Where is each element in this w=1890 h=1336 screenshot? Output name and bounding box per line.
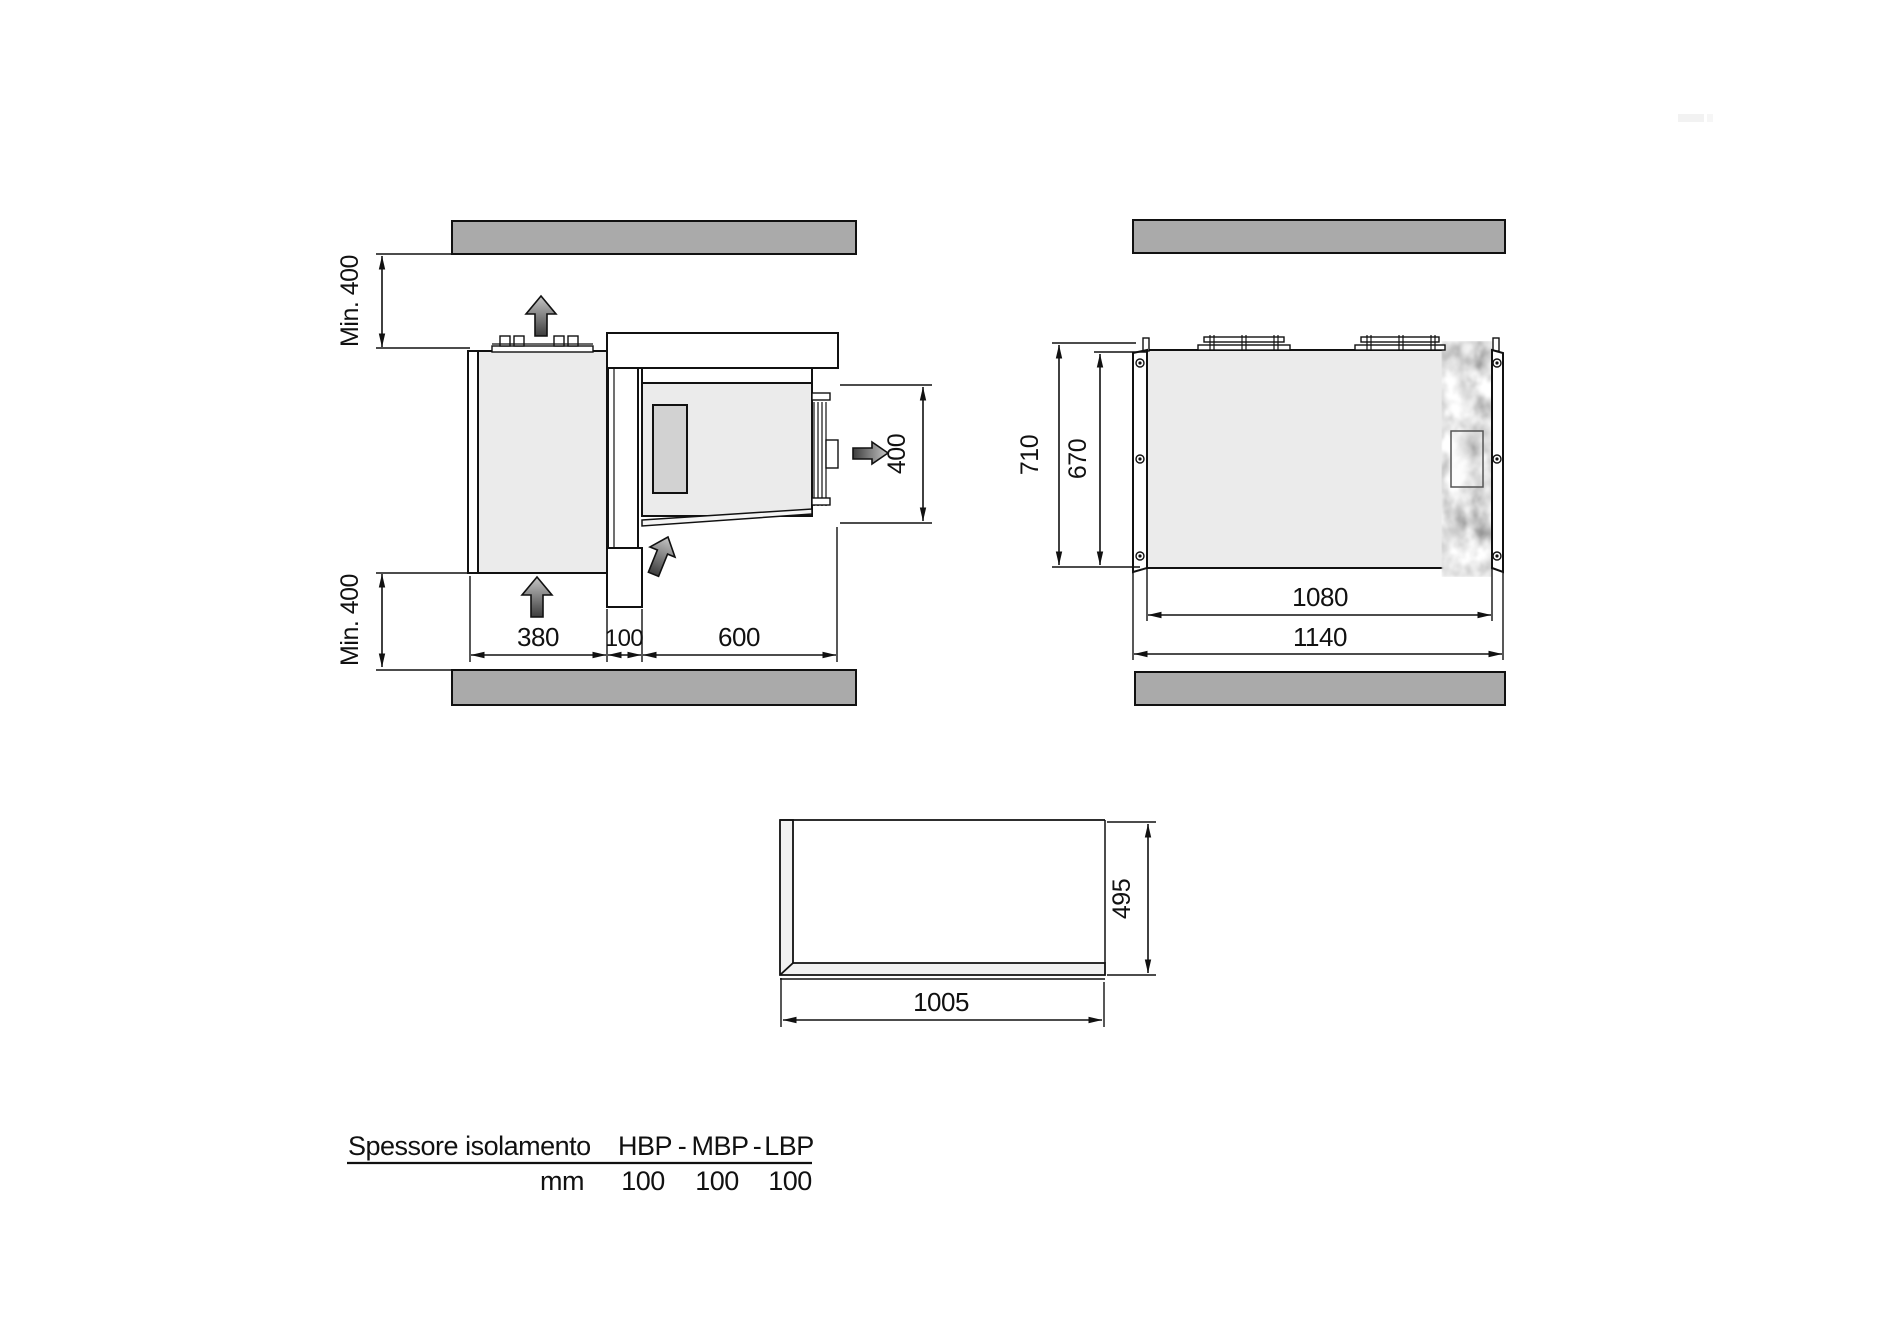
condensing-unit-body — [478, 351, 607, 573]
insulation-table: Spessore isolamento HBP - MBP - LBP mm 1… — [347, 1131, 814, 1196]
faint-watermark — [1678, 114, 1713, 122]
unit-body — [1147, 350, 1492, 568]
top-fin-group-left — [1198, 335, 1290, 350]
table-value-mbp: 100 — [695, 1166, 739, 1196]
table-header-mbp: MBP — [691, 1131, 748, 1161]
top-view-top-wall — [1133, 220, 1505, 253]
table-value-hbp: 100 — [621, 1166, 665, 1196]
dim-label-depth-body: 670 — [1064, 439, 1092, 479]
panel-l-profile — [780, 820, 1105, 975]
airflow-up-arrow-top — [526, 296, 556, 336]
dim-label-condensing-depth: 380 — [517, 622, 559, 652]
side-view-top-wall — [452, 221, 856, 254]
dim-label-panel-depth: 495 — [1108, 879, 1136, 919]
table-header-hbp: HBP — [618, 1131, 672, 1161]
airflow-up-arrow-bottom — [522, 577, 552, 617]
dim-label-depth-overall: 710 — [1016, 435, 1044, 475]
airflow-diagonal-arrow — [641, 532, 681, 579]
rating-label — [1451, 431, 1483, 487]
evaporator-top-cap — [642, 368, 812, 383]
table-value-lbp: 100 — [768, 1166, 812, 1196]
table-header-lbp: LBP — [764, 1131, 814, 1161]
dim-label-evaporator-width: 400 — [883, 434, 911, 474]
dim-label-clearance-bottom: Min. 400 — [336, 574, 364, 666]
table-header-separator: - — [678, 1131, 687, 1161]
mounting-bracket-right — [1492, 338, 1503, 572]
top-view: 710 670 1080 1140 — [1016, 220, 1505, 705]
condenser-top-fins — [492, 336, 593, 352]
table-unit-label: mm — [540, 1166, 584, 1196]
room-wall-panel-horizontal — [607, 333, 838, 368]
panel-view: 495 1005 — [780, 820, 1156, 1027]
table-header-separator: - — [753, 1131, 762, 1161]
evaporator-fan-panel — [653, 405, 687, 493]
installation-drawing: Min. 400 Min. 400 400 380 100 600 — [0, 0, 1890, 1336]
room-wall-panel-lower — [607, 548, 642, 607]
technical-drawing-page: Min. 400 Min. 400 400 380 100 600 — [0, 0, 1890, 1336]
dim-label-width-body: 1080 — [1292, 582, 1348, 612]
room-wall-panel-vertical — [608, 368, 638, 548]
side-view-bottom-wall — [452, 670, 856, 705]
evaporator-fin-block — [812, 393, 838, 506]
dim-label-panel-length: 1005 — [913, 987, 969, 1017]
table-title: Spessore isolamento — [348, 1131, 591, 1161]
side-view: Min. 400 Min. 400 400 380 100 600 — [336, 221, 932, 705]
dim-label-wall-thickness: 100 — [605, 625, 644, 652]
dim-label-evaporator-depth: 600 — [718, 622, 760, 652]
top-fin-group-right — [1355, 335, 1445, 350]
dim-label-clearance-top: Min. 400 — [336, 255, 364, 347]
top-view-bottom-wall — [1135, 672, 1505, 705]
mounting-bracket-left — [1133, 338, 1149, 572]
dim-label-width-overall: 1140 — [1293, 622, 1347, 652]
condensing-unit-left-panel — [468, 351, 478, 573]
